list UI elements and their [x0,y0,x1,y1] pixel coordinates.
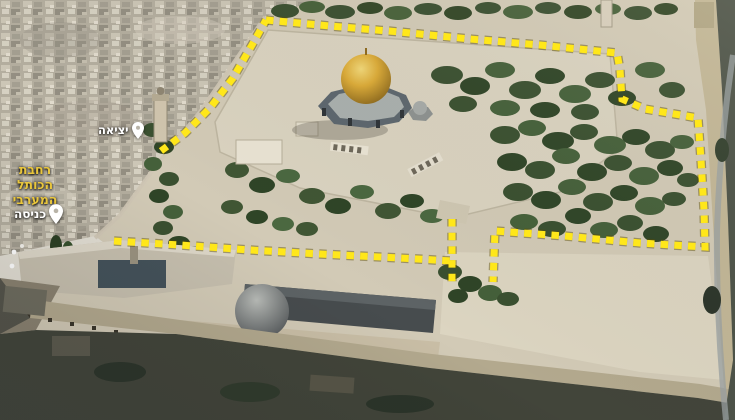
entrance-label: כניסה [14,204,63,224]
map-pin-icon [49,204,63,224]
entrance-label-text: כניסה [14,208,46,221]
exit-label: יציאה [98,122,144,139]
plaza-label-line2: הכותל [0,177,70,192]
exit-label-text: יציאה [98,124,129,137]
photo-grading [0,0,735,420]
map-pin-icon [132,122,144,139]
western-wall-plaza-label: רחבת הכותל המערבי [0,162,70,207]
annotated-aerial-image: יציאה רחבת הכותל המערבי כניסה [0,0,735,420]
plaza-label-line1: רחבת [0,162,70,177]
aerial-photo [0,0,735,420]
